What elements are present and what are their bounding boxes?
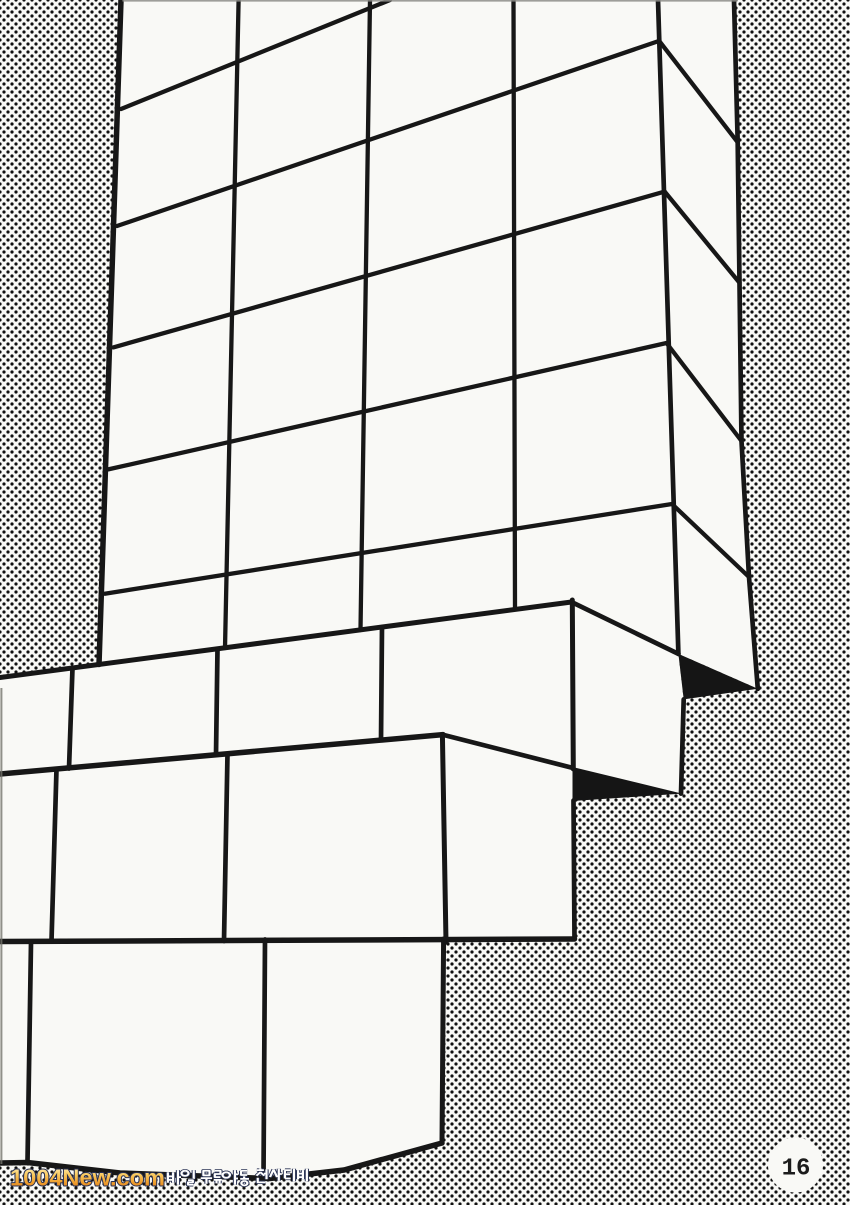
svg-text:16: 16 <box>782 1156 811 1183</box>
svg-text:1004New.com: 1004New.com <box>10 1165 165 1191</box>
